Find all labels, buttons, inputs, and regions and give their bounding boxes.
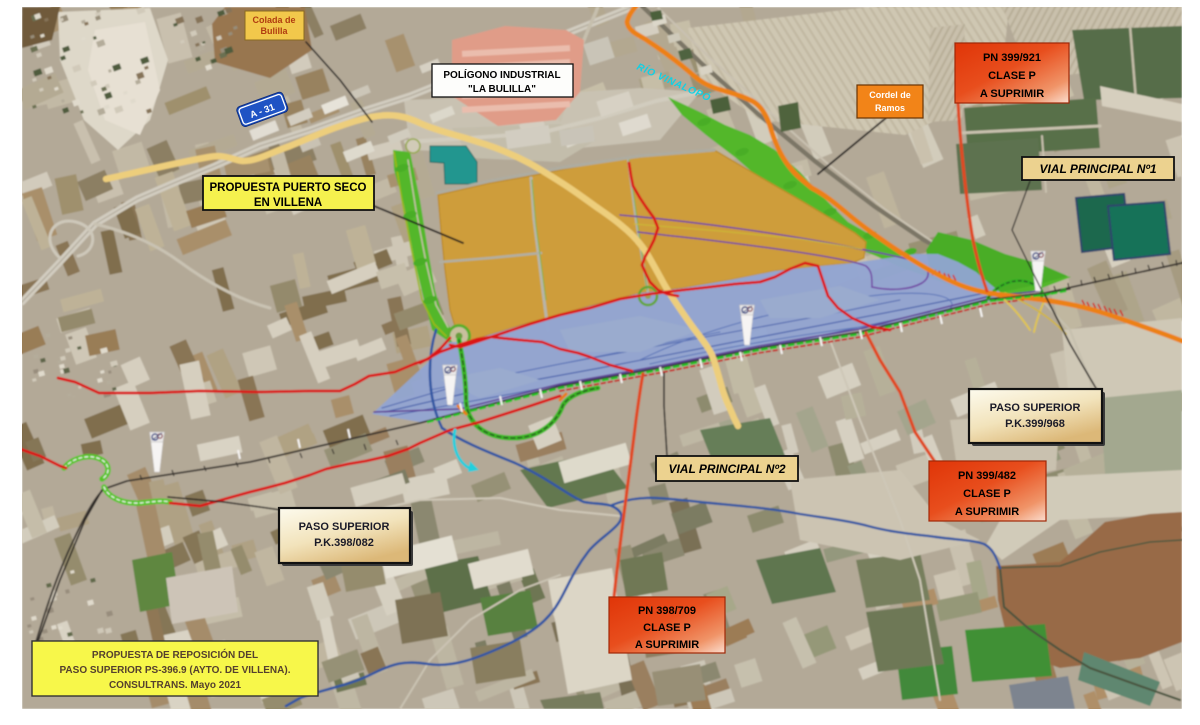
svg-text:Colada de: Colada de	[252, 15, 295, 25]
svg-text:PROPUESTA PUERTO SECO: PROPUESTA PUERTO SECO	[210, 182, 367, 194]
svg-text:Cordel de: Cordel de	[869, 90, 911, 100]
svg-text:EN VILLENA: EN VILLENA	[254, 197, 322, 209]
svg-text:A SUPRIMIR: A SUPRIMIR	[980, 88, 1044, 100]
svg-text:PN 398/709: PN 398/709	[638, 605, 696, 617]
svg-text:CLASE P: CLASE P	[643, 622, 691, 634]
svg-text:CONSULTRANS. Mayo 2021: CONSULTRANS. Mayo 2021	[109, 680, 242, 691]
svg-text:PASO SUPERIOR: PASO SUPERIOR	[299, 521, 390, 533]
svg-text:Ramos: Ramos	[875, 103, 905, 113]
svg-text:CLASE P: CLASE P	[963, 488, 1011, 500]
svg-text:PN 399/482: PN 399/482	[958, 470, 1016, 482]
svg-text:PN 399/921: PN 399/921	[983, 52, 1041, 64]
svg-text:Bulilla: Bulilla	[260, 26, 288, 36]
svg-text:"LA BULILLA": "LA BULILLA"	[468, 84, 536, 95]
svg-text:A SUPRIMIR: A SUPRIMIR	[955, 506, 1019, 518]
svg-text:P.K.398/082: P.K.398/082	[314, 537, 374, 549]
svg-text:VIAL PRINCIPAL Nº2: VIAL PRINCIPAL Nº2	[668, 462, 785, 476]
svg-text:VIAL PRINCIPAL Nº1: VIAL PRINCIPAL Nº1	[1039, 162, 1156, 176]
svg-text:PASO SUPERIOR: PASO SUPERIOR	[990, 402, 1081, 414]
svg-text:P.K.399/968: P.K.399/968	[1005, 418, 1065, 430]
svg-text:POLÍGONO INDUSTRIAL: POLÍGONO INDUSTRIAL	[443, 68, 560, 81]
svg-text:CLASE P: CLASE P	[988, 70, 1036, 82]
svg-text:A SUPRIMIR: A SUPRIMIR	[635, 639, 699, 651]
svg-text:PASO SUPERIOR PS-396.9 (AYTO.: PASO SUPERIOR PS-396.9 (AYTO. DE VILLENA…	[60, 665, 291, 676]
svg-text:PROPUESTA DE REPOSICIÓN DEL: PROPUESTA DE REPOSICIÓN DEL	[92, 648, 258, 661]
